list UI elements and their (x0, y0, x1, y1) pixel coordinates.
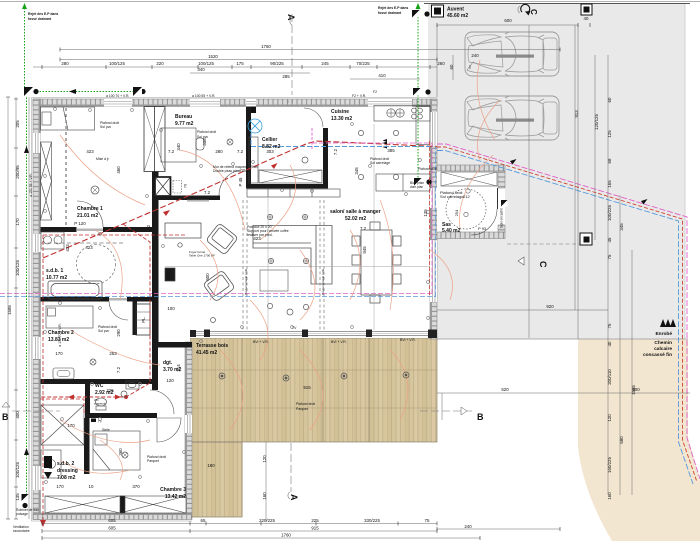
svg-text:75: 75 (425, 518, 430, 523)
svg-text:Enrobé: Enrobé (655, 331, 672, 337)
svg-text:a 150 56 + V.R.: a 150 56 + V.R. (29, 173, 33, 196)
svg-text:345: 345 (354, 167, 359, 175)
svg-text:100/125: 100/125 (15, 260, 20, 276)
svg-text:calcaire: calcaire (654, 346, 672, 352)
svg-text:90/225: 90/225 (270, 61, 284, 66)
svg-text:680: 680 (619, 436, 624, 444)
svg-text:tapis encastré: tapis encastré (500, 208, 504, 228)
svg-text:100: 100 (167, 306, 175, 311)
svg-text:fossé drainant: fossé drainant (378, 11, 402, 15)
svg-text:220/225: 220/225 (259, 518, 275, 523)
svg-text:puisage: puisage (16, 512, 28, 516)
svg-text:40: 40 (584, 16, 589, 21)
svg-text:5.40 m2: 5.40 m2 (442, 228, 461, 234)
svg-text:Cuisine: Cuisine (331, 109, 349, 115)
svg-text:423: 423 (85, 245, 93, 250)
svg-text:160: 160 (262, 492, 267, 500)
svg-text:330/225: 330/225 (364, 518, 380, 523)
svg-text:400: 400 (15, 411, 20, 419)
svg-text:Chemin: Chemin (654, 340, 672, 346)
svg-text:7.2: 7.2 (168, 149, 175, 154)
svg-text:secondaire: secondaire (13, 529, 30, 533)
svg-text:165: 165 (607, 180, 612, 188)
svg-text:1760: 1760 (261, 44, 271, 49)
svg-text:Parquet: Parquet (296, 407, 308, 411)
svg-text:Poutre lamellé collé: Poutre lamellé collé (321, 268, 325, 295)
svg-text:7.2: 7.2 (204, 190, 211, 195)
svg-text:60: 60 (607, 97, 612, 102)
svg-text:45.60 m2: 45.60 m2 (447, 13, 468, 19)
svg-text:100/125: 100/125 (198, 61, 214, 66)
svg-text:10.77 m2: 10.77 m2 (46, 275, 67, 281)
svg-text:1585: 1585 (7, 305, 12, 315)
svg-text:Sol carrelage: Sol carrelage (370, 161, 390, 165)
svg-text:120/125: 120/125 (594, 114, 599, 130)
svg-text:400: 400 (632, 387, 640, 392)
svg-text:dressing: dressing (57, 468, 78, 474)
svg-text:Sol pvc: Sol pvc (197, 135, 208, 139)
svg-text:7.2: 7.2 (333, 148, 338, 155)
svg-text:340: 340 (176, 143, 181, 151)
svg-text:Bureau: Bureau (175, 114, 192, 120)
svg-text:290: 290 (116, 329, 121, 337)
svg-text:60: 60 (449, 64, 454, 69)
svg-text:Plafond droit: Plafond droit (197, 130, 216, 134)
svg-text:Rejet des E.P dans: Rejet des E.P dans (378, 6, 408, 10)
svg-text:P 93: P 93 (478, 226, 487, 231)
svg-text:220: 220 (156, 61, 164, 66)
svg-text:Sol carrelage: Sol carrelage (440, 194, 464, 199)
svg-text:7.2: 7.2 (116, 366, 121, 373)
svg-text:253: 253 (109, 351, 117, 356)
svg-text:170: 170 (56, 484, 64, 489)
svg-text:170: 170 (67, 423, 75, 428)
svg-text:135: 135 (423, 209, 428, 217)
svg-text:Double peau placo coller: Double peau placo coller (213, 169, 251, 173)
svg-text:160/225: 160/225 (607, 457, 612, 473)
svg-text:212: 212 (463, 194, 470, 199)
svg-text:520: 520 (501, 387, 509, 392)
svg-text:Chambre 2: Chambre 2 (48, 330, 74, 336)
svg-text:1760: 1760 (281, 533, 291, 538)
svg-text:Plafond droit: Plafond droit (296, 402, 315, 406)
svg-text:s.d.b. 1: s.d.b. 1 (46, 268, 63, 274)
svg-text:70: 70 (184, 184, 188, 188)
svg-text:Chambre 1: Chambre 1 (77, 206, 103, 212)
svg-text:254: 254 (454, 209, 459, 216)
svg-text:200/95: 200/95 (15, 165, 20, 179)
svg-text:945: 945 (362, 246, 367, 254)
svg-text:120: 120 (166, 378, 174, 383)
svg-text:345: 345 (619, 223, 624, 231)
svg-text:a 100 70 + V.R.: a 100 70 + V.R. (106, 94, 129, 98)
svg-text:460: 460 (116, 166, 121, 174)
svg-text:175: 175 (236, 61, 244, 66)
svg-text:A: A (289, 494, 299, 501)
svg-text:180: 180 (207, 463, 215, 468)
svg-text:salon/ salle à manger: salon/ salle à manger (330, 209, 381, 215)
svg-text:75: 75 (607, 254, 612, 259)
svg-text:TV: TV (292, 326, 297, 330)
svg-text:F2: F2 (373, 90, 377, 94)
svg-text:suspendu: suspendu (94, 402, 107, 406)
svg-text:Cellier: Cellier (262, 137, 277, 143)
svg-text:WC: WC (95, 383, 104, 389)
svg-text:915: 915 (303, 385, 311, 390)
svg-text:260: 260 (437, 61, 445, 66)
svg-text:9.77 m2: 9.77 m2 (175, 121, 194, 127)
svg-text:Terrasse bois: Terrasse bois (196, 343, 228, 349)
svg-text:340: 340 (197, 67, 205, 72)
svg-text:3.70 m2: 3.70 m2 (163, 367, 182, 373)
svg-text:BVI + V.R.: BVI + V.R. (400, 338, 416, 342)
svg-text:70/225: 70/225 (356, 61, 370, 66)
svg-text:285: 285 (282, 74, 290, 79)
svg-text:7.08 m2: 7.08 m2 (57, 475, 76, 481)
svg-text:13.30 m2: 13.30 m2 (331, 116, 352, 122)
svg-text:Plafond droit: Plafond droit (418, 167, 437, 171)
svg-text:920: 920 (546, 304, 554, 309)
svg-text:P 120: P 120 (74, 221, 86, 226)
svg-text:170: 170 (15, 218, 20, 226)
svg-text:240: 240 (464, 524, 472, 529)
svg-text:s.d.b. 2: s.d.b. 2 (57, 461, 74, 467)
svg-text:205: 205 (15, 120, 20, 128)
svg-text:913: 913 (574, 110, 579, 118)
svg-text:100/125: 100/125 (109, 61, 125, 66)
svg-text:BVI + V.R.: BVI + V.R. (331, 340, 347, 344)
svg-text:360: 360 (118, 448, 123, 456)
svg-text:dgt.: dgt. (163, 360, 173, 366)
svg-text:P 45: P 45 (238, 177, 243, 187)
svg-text:600: 600 (504, 18, 512, 23)
svg-text:Rejet des E.P dans: Rejet des E.P dans (28, 12, 58, 16)
svg-text:423: 423 (86, 149, 94, 154)
svg-text:245: 245 (321, 61, 329, 66)
svg-text:120: 120 (607, 414, 612, 422)
svg-text:423: 423 (65, 244, 70, 252)
svg-text:240: 240 (471, 53, 479, 58)
svg-text:410: 410 (378, 73, 386, 78)
svg-text:Parquet: Parquet (147, 459, 159, 463)
svg-text:40: 40 (607, 341, 612, 346)
svg-text:225: 225 (311, 518, 319, 523)
svg-text:41.45 m2: 41.45 m2 (196, 350, 217, 356)
svg-text:160: 160 (607, 492, 612, 500)
svg-text:100/125: 100/125 (15, 462, 20, 478)
svg-text:1520: 1520 (208, 54, 218, 59)
svg-text:C: C (529, 9, 538, 15)
svg-text:385: 385 (387, 148, 395, 153)
svg-text:dom.plan: dom.plan (410, 185, 423, 189)
svg-text:Sol pvc: Sol pvc (98, 329, 109, 333)
svg-text:500: 500 (205, 273, 210, 281)
svg-text:915: 915 (311, 526, 319, 531)
svg-text:Chambre 3: Chambre 3 (160, 487, 186, 493)
svg-text:concassé fin: concassé fin (643, 352, 672, 358)
svg-text:2.92 m2: 2.92 m2 (95, 390, 114, 396)
svg-text:B: B (477, 412, 484, 422)
svg-text:45: 45 (607, 237, 612, 242)
svg-text:PL: PL (141, 317, 146, 323)
svg-text:13.42 m2: 13.42 m2 (165, 494, 186, 500)
svg-text:7.2: 7.2 (237, 149, 244, 154)
svg-text:65: 65 (201, 518, 206, 523)
svg-text:280: 280 (215, 149, 223, 154)
svg-text:170: 170 (55, 351, 63, 356)
svg-text:370: 370 (132, 484, 140, 489)
svg-text:Stèle: Stèle (102, 428, 110, 432)
svg-text:8.82 m2: 8.82 m2 (262, 144, 281, 150)
svg-text:7.2: 7.2 (146, 224, 151, 231)
svg-text:125: 125 (607, 130, 612, 138)
svg-text:605: 605 (108, 518, 116, 523)
svg-text:75: 75 (607, 323, 612, 328)
svg-text:fossé drainant: fossé drainant (28, 17, 52, 21)
svg-text:Sol pvc: Sol pvc (100, 125, 111, 129)
svg-text:F2 + V.R.: F2 + V.R. (352, 94, 366, 98)
svg-text:7.2: 7.2 (360, 226, 367, 231)
svg-text:100/225: 100/225 (607, 205, 612, 221)
svg-text:605: 605 (108, 526, 116, 531)
svg-text:a 100 55 + V.R.: a 100 55 + V.R. (192, 94, 215, 98)
svg-text:Auvent: Auvent (447, 7, 464, 13)
svg-text:A: A (286, 14, 296, 21)
svg-text:21.01 m2: 21.01 m2 (77, 213, 98, 219)
svg-text:135: 135 (15, 493, 20, 501)
svg-text:200/110: 200/110 (607, 369, 612, 385)
svg-text:Poutre lamellé collé: Poutre lamellé collé (244, 268, 248, 295)
svg-text:réaliser par préd.: réaliser par préd. (247, 233, 273, 237)
svg-text:C: C (538, 261, 548, 268)
svg-text:52.02 m2: 52.02 m2 (345, 216, 366, 222)
svg-text:120: 120 (262, 455, 267, 463)
svg-text:BVI + V.R.: BVI + V.R. (253, 340, 269, 344)
svg-text:10: 10 (89, 484, 94, 489)
svg-text:13.83 m2: 13.83 m2 (48, 337, 69, 343)
svg-text:280: 280 (61, 61, 69, 66)
svg-text:68: 68 (607, 158, 612, 163)
svg-text:Mise à jr: Mise à jr (96, 157, 110, 161)
